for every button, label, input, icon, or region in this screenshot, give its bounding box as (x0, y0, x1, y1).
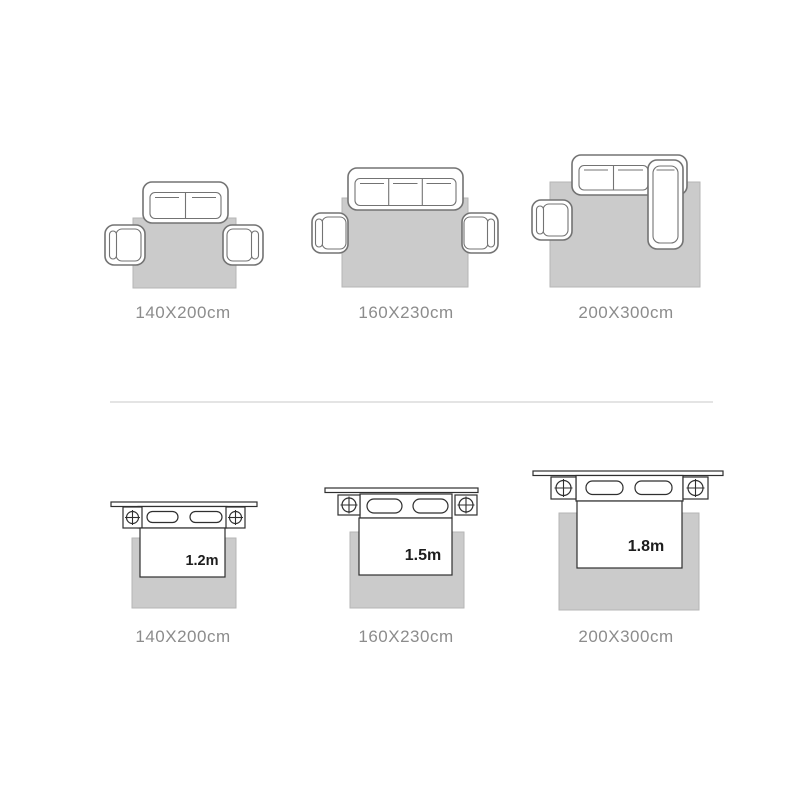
bed-diagram-large-graphic: 1.8m (520, 460, 730, 615)
headboard (325, 488, 478, 493)
bed-width-label: 1.8m (628, 538, 664, 555)
armchair-left (105, 225, 145, 265)
sofa-rug-diagram-140x200 (100, 150, 270, 300)
headboard (111, 502, 257, 507)
bed-diagram-medium-graphic: 1.5m (300, 480, 510, 615)
rug-size-guide: 140X200cm 160X2 (0, 0, 800, 800)
sofa-rug-diagram-160x230 (300, 150, 510, 300)
rug (133, 218, 236, 288)
pillow (147, 512, 178, 523)
pillow (413, 499, 448, 513)
pillow (586, 481, 623, 495)
three-seat-sofa (348, 168, 463, 210)
sofa-diagram-small-graphic (100, 150, 270, 295)
pillow (190, 512, 222, 523)
bed-size-label-3: 200X300cm (546, 627, 706, 647)
armchair-left (532, 200, 572, 240)
sofa-diagram-medium-graphic (300, 150, 510, 295)
armchair-left (312, 213, 348, 253)
bed-width-label: 1.5m (405, 547, 441, 564)
headboard (533, 471, 723, 476)
sofa-size-label-2: 160X230cm (326, 303, 486, 323)
bed-size-label-1: 140X200cm (103, 627, 263, 647)
row-divider (110, 401, 713, 403)
bed-diagram-small-graphic: 1.2m (100, 490, 270, 615)
mattress (577, 501, 682, 568)
bed-rug-diagram-200x300: 1.8m (520, 460, 730, 620)
sofa-diagram-large-graphic (520, 140, 720, 295)
pillow (635, 481, 672, 495)
rug (342, 198, 468, 287)
pillow (367, 499, 402, 513)
sofa-size-label-1: 140X200cm (103, 303, 263, 323)
two-seat-sofa (143, 182, 228, 223)
bed-rug-diagram-140x200: 1.2m (100, 490, 270, 620)
armchair-right (223, 225, 263, 265)
armchair-right (462, 213, 498, 253)
sofa-size-label-3: 200X300cm (546, 303, 706, 323)
bed-width-label: 1.2m (185, 553, 218, 569)
bed-size-label-2: 160X230cm (326, 627, 486, 647)
sofa-rug-diagram-200x300 (520, 140, 720, 300)
bed-rug-diagram-160x230: 1.5m (300, 480, 510, 620)
